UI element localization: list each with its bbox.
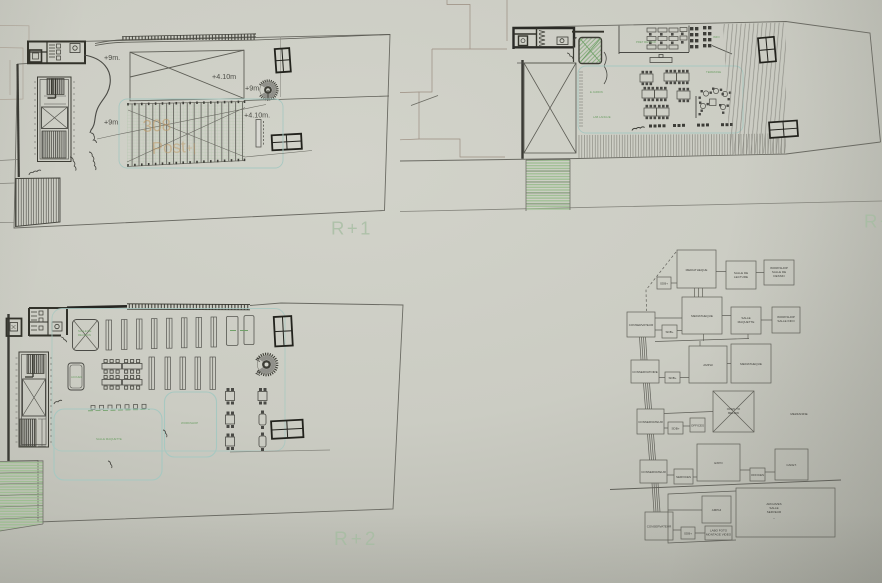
svg-text:SDB+: SDB+ xyxy=(672,427,680,431)
svg-text:MEZZANINE: MEZZANINE xyxy=(790,412,807,416)
svg-text:E JARDIN: E JARDIN xyxy=(590,90,603,94)
svg-text:R+: R+ xyxy=(864,211,882,232)
svg-text:CAFET.: CAFET. xyxy=(786,463,797,467)
svg-text:MONTAGE VIDEO: MONTAGE VIDEO xyxy=(706,533,732,537)
svg-text:+9m.: +9m. xyxy=(104,53,120,62)
svg-text:CONSERVATEUR: CONSERVATEUR xyxy=(629,323,654,327)
svg-text:BELOW: BELOW xyxy=(728,411,739,415)
svg-text:SDB+: SDB+ xyxy=(660,282,668,286)
svg-text:SERVICES: SERVICES xyxy=(676,475,691,479)
svg-text:+9m: +9m xyxy=(245,84,259,93)
svg-text:REUNION: REUNION xyxy=(78,333,91,337)
svg-text:SALLE MAQUETTE: SALLE MAQUETTE xyxy=(96,437,122,441)
svg-text:MEDIATHEQUE: MEDIATHEQUE xyxy=(740,362,762,366)
svg-text:SALLE INFO: SALLE INFO xyxy=(777,319,795,323)
svg-text:TERRASSE: TERRASSE xyxy=(706,70,721,74)
svg-text:CONSERVATOIRE: CONSERVATOIRE xyxy=(632,370,657,374)
svg-text:CONSERVATEUR: CONSERVATEUR xyxy=(638,420,663,424)
svg-text:INFO: INFO xyxy=(713,35,721,39)
svg-text:+9m.: +9m. xyxy=(104,118,120,127)
svg-text:OFFICES: OFFICES xyxy=(691,424,704,428)
svg-text:R+1: R+1 xyxy=(331,218,373,239)
svg-text:308: 308 xyxy=(142,116,171,136)
svg-text:PRET RETOUR: PRET RETOUR xyxy=(636,40,656,44)
svg-text:EXPO: EXPO xyxy=(714,461,723,465)
svg-text:R+2: R+2 xyxy=(334,529,378,550)
svg-text:--: -- xyxy=(773,516,775,520)
svg-text:LECTURE: LECTURE xyxy=(734,275,748,279)
svg-text:AMPHI: AMPHI xyxy=(712,508,722,512)
svg-text:OFFICES: OFFICES xyxy=(751,473,764,477)
svg-text:LAB LANGUE: LAB LANGUE xyxy=(593,115,611,119)
svg-text:ACCUEIL: ACCUEIL xyxy=(71,375,83,379)
svg-text:CONSERVATEUR: CONSERVATEUR xyxy=(641,470,666,474)
svg-text:SDB+: SDB+ xyxy=(669,376,677,380)
svg-text:MEDIATHEQUE: MEDIATHEQUE xyxy=(691,314,713,318)
svg-text:MAQUETTE: MAQUETTE xyxy=(738,320,755,324)
svg-text:WORKSHOP: WORKSHOP xyxy=(181,421,198,425)
svg-text:+4.10m.: +4.10m. xyxy=(244,111,270,120)
svg-text:DESSIN: DESSIN xyxy=(773,274,784,278)
svg-text:MEDIATHEQUE: MEDIATHEQUE xyxy=(686,268,708,272)
svg-text:+4.10m: +4.10m xyxy=(212,72,236,81)
svg-text:SDB+: SDB+ xyxy=(666,330,674,334)
svg-text:SERVEUR: SERVEUR xyxy=(767,510,782,514)
svg-text:SDB+: SDB+ xyxy=(684,532,692,536)
svg-text:AMPHI: AMPHI xyxy=(703,363,713,367)
